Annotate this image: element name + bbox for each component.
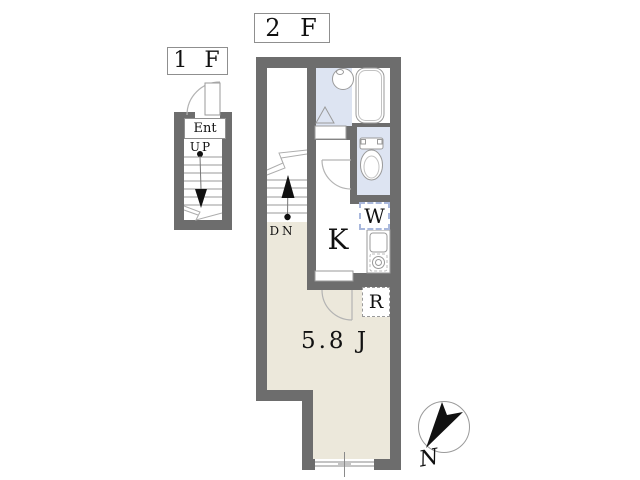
bathtub bbox=[356, 68, 384, 123]
wall bbox=[307, 68, 316, 290]
wall bbox=[174, 112, 184, 230]
toilet bbox=[360, 138, 383, 180]
washer-box: W bbox=[359, 202, 390, 230]
wall bbox=[350, 127, 357, 195]
entrance-label: Ent bbox=[184, 118, 226, 139]
wall bbox=[302, 390, 313, 470]
floor-plan: 2 F 1 F Ent UP DN K W R 5.8 J N bbox=[0, 0, 640, 480]
stair-up-label: UP bbox=[186, 140, 216, 153]
floor-label-2f: 2 F bbox=[254, 13, 330, 43]
entrance-door bbox=[187, 82, 220, 115]
stair-direction-arrow bbox=[282, 175, 295, 198]
first-floor-unit bbox=[174, 82, 232, 230]
bathroom-sink bbox=[333, 69, 354, 90]
north-label: N bbox=[414, 443, 444, 475]
vanity-counter bbox=[315, 126, 346, 139]
room-area-label: 5.8 J bbox=[300, 327, 370, 355]
wall bbox=[174, 220, 232, 230]
kitchen-label: K bbox=[320, 224, 356, 256]
stair-down-label: DN bbox=[266, 224, 299, 237]
stairs-1f bbox=[184, 151, 222, 220]
second-floor-unit bbox=[256, 57, 401, 477]
toilet-door bbox=[322, 160, 351, 189]
wall bbox=[352, 123, 390, 127]
fridge-box: R bbox=[362, 287, 390, 317]
stairs-2f bbox=[267, 150, 307, 220]
kitchen-counter bbox=[367, 230, 390, 273]
kitchen-sink bbox=[370, 233, 387, 252]
floor-label-1f: 1 F bbox=[167, 47, 228, 75]
wall bbox=[256, 57, 401, 68]
wall bbox=[390, 57, 401, 470]
counter-strip bbox=[315, 271, 353, 281]
